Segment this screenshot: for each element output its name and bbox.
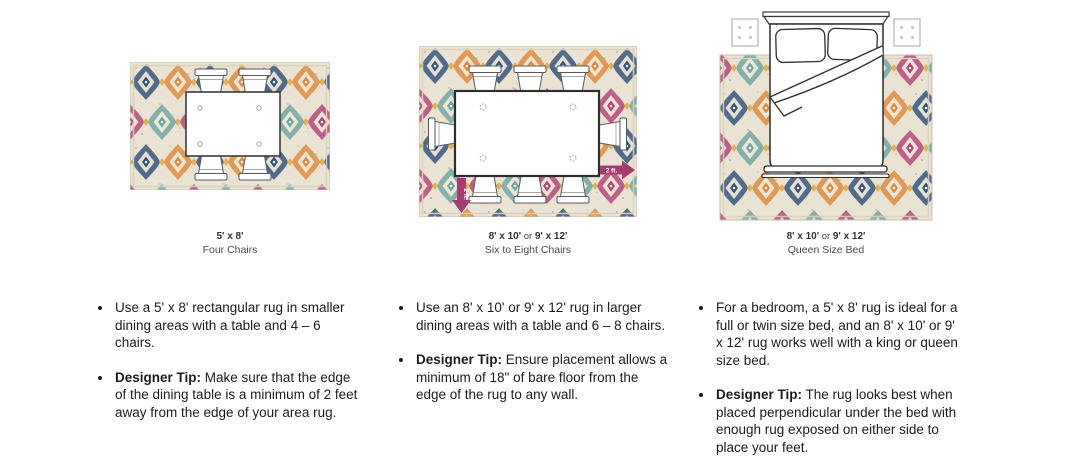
caption-label: Six to Eight Chairs [419, 244, 637, 256]
tip-item: Designer Tip: Ensure placement allows a … [414, 351, 668, 404]
figure-caption: 5' x 8' Four Chairs [130, 229, 330, 256]
nightstand-icon [732, 19, 758, 46]
arrow-label: 2 ft. [606, 168, 618, 175]
caption-label: Queen Size Bed [720, 244, 932, 256]
tip-text: For a bedroom, a 5' x 8' rug is ideal fo… [716, 300, 958, 368]
dining-large-tips: Use an 8' x 10' or 9' x 12' rug in large… [398, 299, 668, 404]
caption-size-line: 8' x 10' or 9' x 12' [419, 229, 637, 243]
arrow-label: 2 ft. [462, 188, 469, 200]
dining-large-rug-diagram: 2 ft. 2 ft. [419, 46, 637, 217]
tip-item: Designer Tip: Make sure that the edge of… [113, 369, 359, 422]
bedroom-rug-diagram [718, 8, 934, 222]
nightstand-icon [894, 19, 920, 46]
bedroom-tips: For a bedroom, a 5' x 8' rug is ideal fo… [698, 299, 964, 456]
caption-label: Four Chairs [130, 244, 330, 256]
caption-size-line: 8' x 10' or 9' x 12' [720, 229, 932, 243]
figure-caption: 8' x 10' or 9' x 12' Six to Eight Chairs [419, 229, 637, 256]
tip-item: Use a 5' x 8' rectangular rug in smaller… [113, 299, 359, 352]
tip-item: Designer Tip: The rug looks best when pl… [714, 386, 964, 456]
tip-lead: Designer Tip: [115, 370, 201, 385]
dining-small-rug-diagram [130, 62, 330, 190]
tip-item: For a bedroom, a 5' x 8' rug is ideal fo… [714, 299, 964, 369]
dining-table-icon [455, 91, 599, 176]
bed-icon [762, 12, 889, 178]
tip-item: Use an 8' x 10' or 9' x 12' rug in large… [414, 299, 668, 334]
dining-small-tips: Use a 5' x 8' rectangular rug in smaller… [97, 299, 359, 421]
tip-text: Use a 5' x 8' rectangular rug in smaller… [115, 300, 345, 350]
dining-table-icon [186, 92, 280, 156]
rug-size-guide-page: 5' x 8' Four Chairs 2 ft. 2 ft. [0, 0, 1080, 475]
figure-caption: 8' x 10' or 9' x 12' Queen Size Bed [720, 229, 932, 256]
tip-lead: Designer Tip: [416, 352, 502, 367]
tip-lead: Designer Tip: [716, 387, 802, 402]
tip-text: Use an 8' x 10' or 9' x 12' rug in large… [416, 300, 665, 333]
caption-size-line: 5' x 8' [130, 229, 330, 243]
